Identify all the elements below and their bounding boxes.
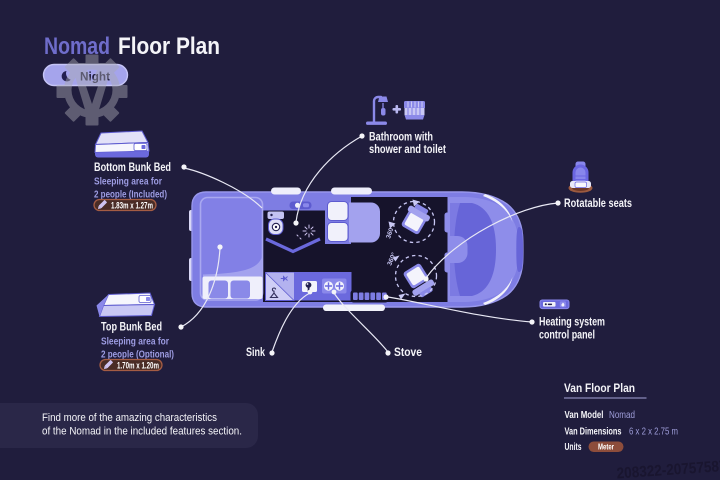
svg-text:Top Bunk Bed: Top Bunk Bed [101,320,162,334]
svg-text:shower and toilet: shower and toilet [369,142,446,156]
svg-text:Van Floor Plan: Van Floor Plan [564,381,635,395]
svg-text:Find more of the amazing chara: Find more of the amazing characteristics [42,412,218,424]
svg-text:Van Dimensions: Van Dimensions [565,426,622,438]
svg-text:Nomad: Nomad [609,409,635,421]
svg-text:2 people (Included): 2 people (Included) [94,189,167,201]
svg-text:Rotatable seats: Rotatable seats [564,196,632,210]
svg-text:Stove: Stove [394,345,422,359]
svg-text:of the Nomad in the included f: of the Nomad in the included features se… [42,426,242,438]
svg-text:Van Model: Van Model [565,409,604,421]
svg-text:Sink: Sink [246,345,265,359]
svg-text:Heating system: Heating system [539,315,605,329]
svg-text:2 people (Optional): 2 people (Optional) [101,349,174,361]
svg-text:1.70m x 1.20m: 1.70m x 1.20m [117,360,159,370]
svg-text:Sleeping area for: Sleeping area for [94,176,162,188]
svg-text:Nomad: Nomad [44,33,110,60]
svg-text:1.83m x 1.27m: 1.83m x 1.27m [111,200,153,210]
svg-text:Meter: Meter [598,442,615,451]
svg-text:Bottom Bunk Bed: Bottom Bunk Bed [94,160,171,174]
svg-text:Floor Plan: Floor Plan [118,33,220,60]
svg-text:control panel: control panel [539,328,595,342]
svg-text:6 x 2 x 2.75 m: 6 x 2 x 2.75 m [629,426,678,438]
svg-text:Units: Units [565,441,582,453]
svg-text:Sleeping area for: Sleeping area for [101,336,169,348]
